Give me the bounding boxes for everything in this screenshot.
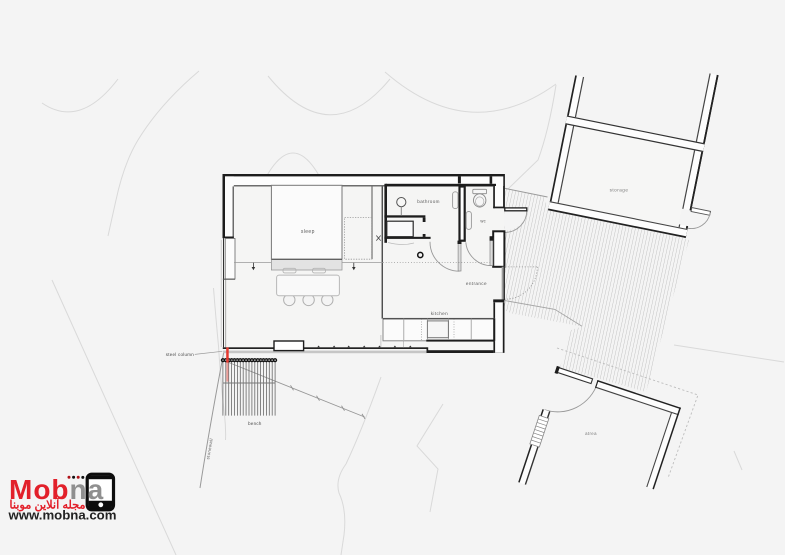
svg-text:atrea: atrea	[585, 431, 597, 436]
svg-text:entrance: entrance	[466, 281, 487, 286]
svg-text:storage: storage	[610, 188, 629, 193]
svg-text:wc: wc	[480, 218, 486, 223]
svg-text:kitchen: kitchen	[431, 311, 448, 316]
svg-text:sleep: sleep	[301, 229, 315, 235]
svg-text:steel column: steel column	[166, 352, 195, 357]
svg-text:bench: bench	[248, 421, 262, 426]
svg-text:bathroom: bathroom	[417, 199, 440, 204]
svg-text:www.mobna.com: www.mobna.com	[8, 508, 117, 523]
